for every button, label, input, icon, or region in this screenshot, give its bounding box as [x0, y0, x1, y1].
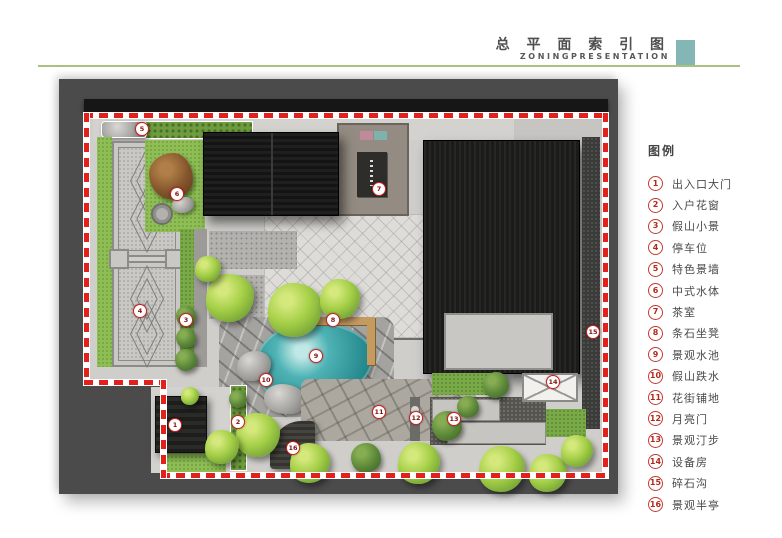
- legend-item-label: 景观水池: [672, 347, 720, 363]
- shrub: [229, 390, 247, 408]
- stone-bench-edge: [367, 317, 375, 365]
- legend-item-number: 10: [648, 369, 663, 384]
- tea-room: [337, 123, 409, 216]
- shrub: [176, 328, 196, 348]
- inner-courtyard: [444, 313, 553, 370]
- legend-item: 9景观水池: [648, 344, 778, 365]
- legend-item: 7茶室: [648, 301, 778, 322]
- legend-item-number: 13: [648, 433, 663, 448]
- legend-item: 3假山小景: [648, 216, 778, 237]
- page-title: 总 平 面 索 引 图: [496, 34, 670, 54]
- legend-item-number: 14: [648, 454, 663, 469]
- legend-item-label: 假山跌水: [672, 368, 720, 384]
- legend-item-number: 3: [648, 219, 663, 234]
- legend-item: 16景观半亭: [648, 494, 778, 515]
- plan-index-marker: 3: [179, 313, 193, 327]
- plan-index-marker: 15: [586, 325, 600, 339]
- boundary-notch-h: [84, 380, 166, 385]
- tea-room-mat: [374, 131, 387, 140]
- gravel-ditch: [582, 137, 600, 429]
- plan-index-marker: 5: [135, 122, 149, 136]
- legend-item-number: 12: [648, 411, 663, 426]
- boundary-top: [84, 113, 608, 118]
- legend-item-number: 1: [648, 176, 663, 191]
- shrub: [457, 396, 479, 418]
- legend-item-label: 中式水体: [672, 283, 720, 299]
- legend-item: 5特色景墙: [648, 259, 778, 280]
- plan-index-marker: 4: [133, 304, 147, 318]
- perimeter-wall: [84, 99, 608, 113]
- plan-index-marker: 7: [372, 182, 386, 196]
- plan-index-marker: 16: [286, 441, 300, 455]
- tea-room-mat: [360, 131, 373, 140]
- legend-item: 4停车位: [648, 237, 778, 258]
- legend-item: 8条石坐凳: [648, 323, 778, 344]
- legend-item: 6中式水体: [648, 280, 778, 301]
- boundary-notch-v: [161, 380, 166, 478]
- legend-item-label: 假山小景: [672, 218, 720, 234]
- legend-item: 15碎石沟: [648, 472, 778, 493]
- legend-item-number: 5: [648, 262, 663, 277]
- legend-item-label: 花街铺地: [672, 390, 720, 406]
- legend-item-label: 碎石沟: [672, 475, 708, 491]
- legend-item-label: 景观半亭: [672, 497, 720, 513]
- legend: 图例 1出入口大门2入户花窗3假山小景4停车位5特色景墙6中式水体7茶室8条石坐…: [648, 142, 778, 515]
- plan-index-marker: 8: [326, 313, 340, 327]
- legend-item-number: 11: [648, 390, 663, 405]
- building-roof-west: [203, 132, 339, 216]
- shrub: [351, 443, 381, 473]
- legend-item: 11花街铺地: [648, 387, 778, 408]
- plan-index-marker: 2: [231, 415, 245, 429]
- legend-item-number: 16: [648, 497, 663, 512]
- plan-index-marker: 14: [546, 375, 560, 389]
- legend-item-label: 条石坐凳: [672, 325, 720, 341]
- legend-item-label: 茶室: [672, 304, 696, 320]
- legend-item: 12月亮门: [648, 408, 778, 429]
- legend-item-label: 入户花窗: [672, 197, 720, 213]
- header-rule: [38, 65, 740, 67]
- roof-ridge: [271, 133, 273, 215]
- legend-item-number: 7: [648, 305, 663, 320]
- paved-pad-1: [209, 231, 297, 269]
- legend-item-number: 8: [648, 326, 663, 341]
- chinese-water-bowl: [151, 203, 173, 225]
- site-plan: 12345678910111213141516: [59, 79, 618, 494]
- plan-index-marker: 6: [170, 187, 184, 201]
- legend-item-number: 4: [648, 240, 663, 255]
- legend-item-number: 6: [648, 283, 663, 298]
- legend-title: 图例: [648, 142, 778, 159]
- boundary-left: [84, 113, 89, 385]
- legend-item-label: 出入口大门: [672, 176, 732, 192]
- legend-item-label: 特色景墙: [672, 261, 720, 277]
- parking-panel-2: [112, 261, 182, 367]
- paving-joint: [109, 249, 129, 269]
- legend-item: 14设备房: [648, 451, 778, 472]
- legend-item: 1出入口大门: [648, 173, 778, 194]
- plan-index-marker: 1: [168, 418, 182, 432]
- building-roof-east: [423, 140, 580, 374]
- legend-item-label: 停车位: [672, 240, 708, 256]
- boundary-right: [603, 113, 608, 478]
- plan-index-marker: 9: [309, 349, 323, 363]
- shrub: [483, 372, 509, 398]
- legend-item-label: 月亮门: [672, 411, 708, 427]
- east-garden-lawn: [546, 409, 586, 437]
- plan-index-marker: 12: [409, 411, 423, 425]
- legend-rows: 1出入口大门2入户花窗3假山小景4停车位5特色景墙6中式水体7茶室8条石坐凳9景…: [648, 173, 778, 515]
- legend-item-number: 15: [648, 476, 663, 491]
- plan-index-marker: 10: [259, 373, 273, 387]
- legend-item: 10假山跌水: [648, 366, 778, 387]
- legend-item-label: 设备房: [672, 454, 708, 470]
- page-subtitle: ZONINGPRESENTATION: [520, 52, 670, 61]
- legend-item-label: 景观汀步: [672, 432, 720, 448]
- legend-item: 2入户花窗: [648, 194, 778, 215]
- legend-item-number: 9: [648, 347, 663, 362]
- shrub: [175, 349, 197, 371]
- legend-item-number: 2: [648, 198, 663, 213]
- tree: [479, 446, 525, 492]
- legend-item: 13景观汀步: [648, 430, 778, 451]
- plan-index-marker: 11: [372, 405, 386, 419]
- accent-square: [676, 40, 695, 65]
- boundary-bottom: [161, 473, 608, 478]
- plan-index-marker: 13: [447, 412, 461, 426]
